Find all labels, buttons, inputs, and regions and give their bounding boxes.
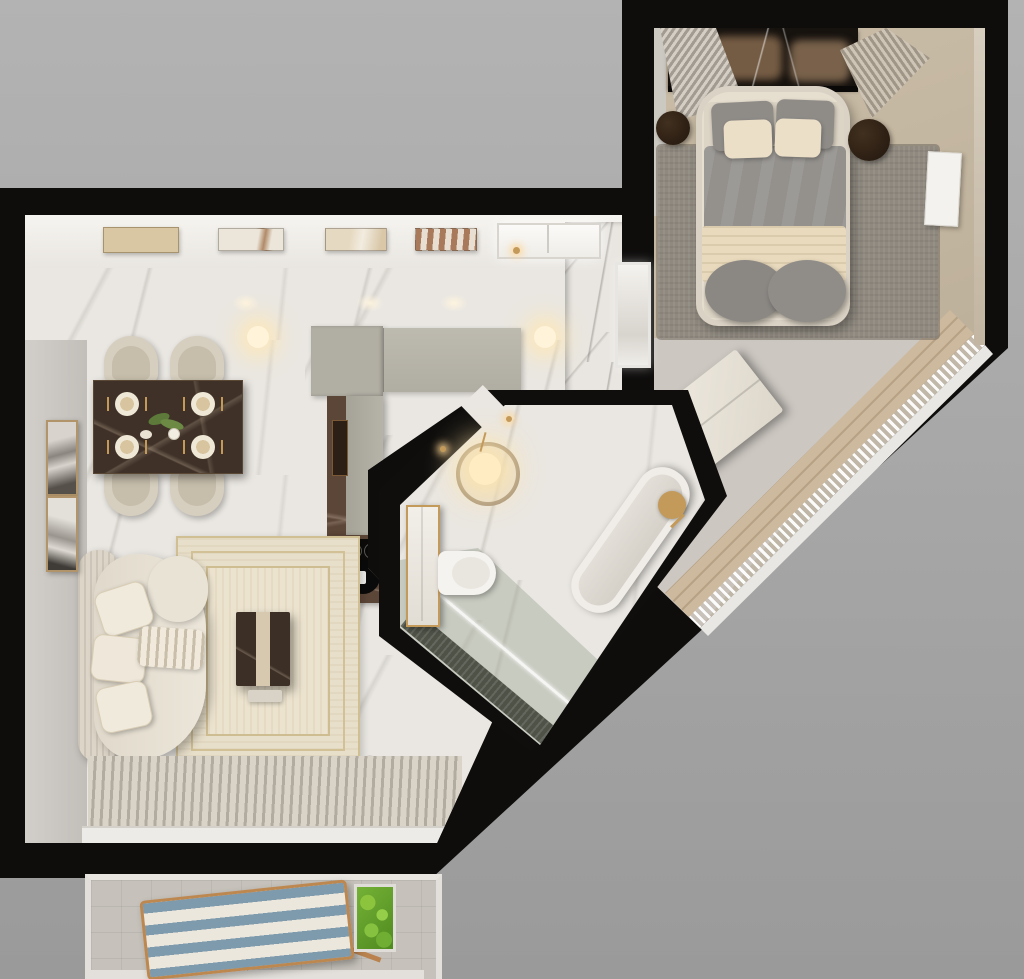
planter-box (354, 884, 396, 952)
wall-sconce (440, 446, 446, 452)
recessed-light (232, 294, 260, 312)
throw-blanket (137, 626, 206, 671)
nightstand-left (656, 111, 690, 145)
fork (107, 440, 109, 454)
balcony (85, 874, 442, 979)
vanity-seam (421, 507, 423, 621)
wall-sconce (506, 416, 512, 422)
centerpiece-cup (168, 428, 180, 440)
sheer-curtain-floor (88, 756, 462, 826)
fork (183, 397, 185, 411)
ceiling-artwork-1 (103, 227, 179, 253)
wall-art-frame (46, 420, 78, 496)
hall-doorway (615, 262, 651, 368)
ceiling-artwork-2 (218, 228, 284, 251)
chair-seat (178, 346, 216, 380)
knife (145, 397, 147, 411)
chair-seat (112, 472, 150, 506)
recessed-light (356, 294, 384, 312)
plate (115, 435, 139, 459)
nightstand-right (848, 119, 890, 161)
sofa-chaise (148, 556, 208, 622)
plate (191, 435, 215, 459)
entrance-pendant-light (469, 453, 501, 485)
balcony-railing-bottom (91, 970, 424, 979)
wall-sconce-gold (513, 247, 520, 254)
fork (107, 397, 109, 411)
ceiling-artwork-3 (325, 228, 387, 251)
knife (221, 397, 223, 411)
bedroom-right-wall-face (974, 28, 985, 345)
floor-plan-render (0, 0, 1024, 979)
pillow-cream-left (723, 119, 772, 159)
plate (191, 392, 215, 416)
floor-art-panel (924, 151, 962, 227)
chair-seat (112, 346, 150, 380)
cutting-board (332, 420, 348, 476)
knife (221, 440, 223, 454)
centerpiece-bowl (140, 430, 152, 439)
ceiling-artwork-4 (415, 228, 477, 251)
pendant-light (534, 326, 556, 348)
vanity-cabinet (406, 505, 440, 627)
coffee-table (236, 612, 290, 686)
coffee-table-band (256, 612, 270, 686)
chair-seat (178, 472, 216, 506)
dining-chair (170, 336, 224, 384)
dining-chair (104, 336, 158, 384)
pillow-cream-right (774, 118, 821, 158)
foot-pillow (768, 260, 846, 322)
pendant-light (247, 326, 269, 348)
window-mullion (547, 225, 549, 253)
recessed-light (440, 294, 468, 312)
kitchen-counter-top (383, 328, 521, 392)
wall-toilet (438, 551, 496, 595)
plate (115, 392, 139, 416)
kitchen-window (497, 223, 601, 259)
wall-art-frame (46, 496, 78, 572)
striped-lounge-chair (139, 879, 354, 979)
coffee-table-tray (248, 690, 282, 702)
knife (145, 440, 147, 454)
toilet-seat (452, 557, 490, 589)
fork (183, 440, 185, 454)
kitchen-cabinet-top (311, 326, 383, 396)
